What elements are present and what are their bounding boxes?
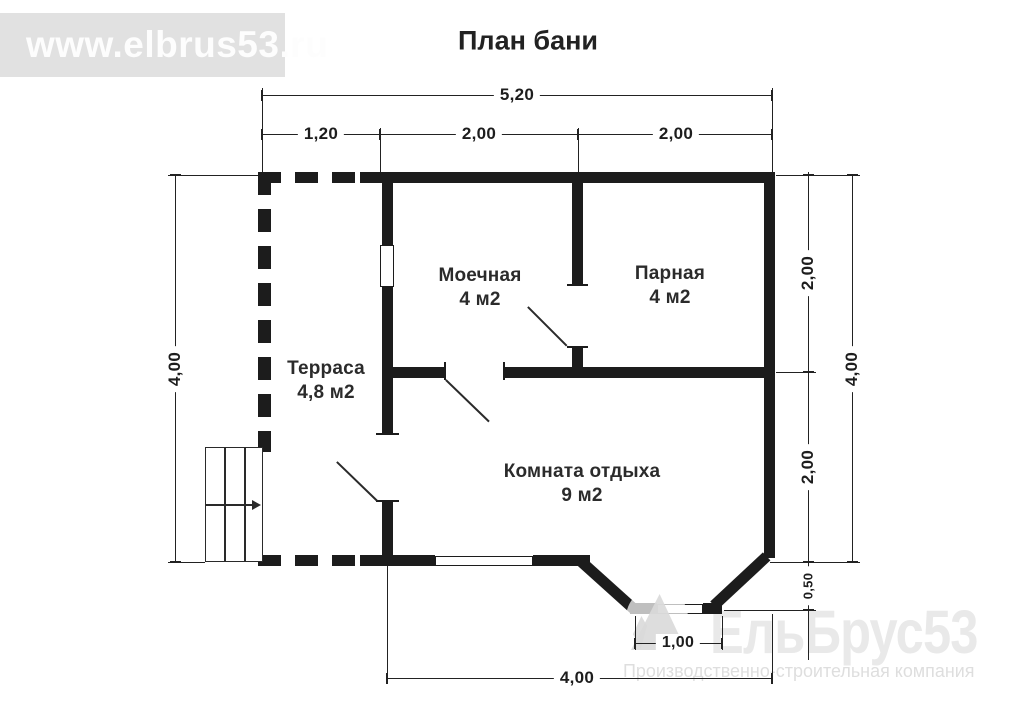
ext-line (776, 175, 860, 176)
wall-bay-bottom-right (703, 603, 722, 614)
room-area: 4 м2 (438, 288, 521, 312)
wall-top (360, 172, 775, 183)
dim-bay-width: 1,00 (656, 634, 700, 652)
ext-line (635, 616, 636, 650)
room-name: Терраса (287, 357, 365, 381)
floor-plan-canvas: ЕльБрус53 Производственно-строительная к… (0, 0, 1024, 717)
door-leaf-steam-room (527, 306, 567, 346)
wall-left-dashed-terrace (258, 172, 271, 452)
dim-left-total: 4,00 (162, 346, 188, 392)
wall-steam-divider-stub (572, 348, 583, 367)
stairs-direction-line (206, 504, 256, 506)
ext-line (772, 88, 773, 172)
door-leaf-terrace (336, 461, 377, 501)
room-label-rest-room: Комната отдыха 9 м2 (504, 460, 661, 508)
jamb-steam-door-top (567, 284, 588, 286)
door-leaf-rest-room (445, 379, 489, 422)
dim-bottom-total: 4,00 (554, 668, 600, 688)
jamb-rest-door-right (503, 362, 505, 380)
ext-line (262, 88, 263, 172)
room-area: 9 м2 (504, 484, 661, 508)
ext-line (770, 562, 860, 563)
window-terrace-wall (380, 245, 394, 287)
room-name: Моечная (438, 264, 521, 288)
room-label-terrace: Терраса 4,8 м2 (287, 357, 365, 405)
stairs (205, 447, 263, 562)
dim-top-total: 5,20 (494, 85, 540, 105)
dim-right-seg-1: 2,00 (795, 250, 821, 296)
ext-line (578, 128, 579, 172)
wall-bottom-dashed-terrace (258, 555, 362, 566)
wall-terrace-door-stub (382, 502, 393, 555)
wall-right (764, 172, 775, 558)
stairs-direction-arrow-icon (252, 500, 261, 510)
dim-right-seg-2: 2,00 (795, 444, 821, 490)
wall-bottom-left (360, 555, 435, 566)
wall-terrace-divider-lower (382, 287, 393, 433)
ext-line (168, 175, 258, 176)
dim-right-seg-3: 0,50 (798, 567, 819, 606)
jamb-terrace-door-bottom (376, 500, 399, 502)
wall-terrace-divider-upper (382, 183, 393, 245)
ext-line (168, 562, 205, 563)
ext-line (772, 614, 773, 684)
ext-line (722, 616, 723, 650)
jamb-steam-door-bottom (567, 346, 588, 348)
jamb-rest-door-left (444, 362, 446, 380)
room-area: 4,8 м2 (287, 381, 365, 405)
ext-line (776, 372, 816, 373)
jamb-terrace-door-top (376, 433, 399, 435)
watermark-logo-text: ЕльБрус53 (710, 597, 978, 667)
dim-right-total: 4,00 (839, 346, 865, 392)
ext-line (387, 566, 388, 684)
wall-top-dashed-terrace (258, 172, 362, 183)
window-rest-room (435, 556, 533, 566)
page-title: План бани (458, 26, 598, 57)
dim-top-seg-1: 1,20 (298, 124, 344, 144)
ext-line (724, 610, 816, 611)
room-label-steam-room: Парная 4 м2 (635, 262, 705, 310)
room-area: 4 м2 (635, 286, 705, 310)
site-banner: www.elbrus53.ru (0, 13, 285, 77)
ext-line (380, 128, 381, 172)
dim-top-seg-3: 2,00 (653, 124, 699, 144)
wall-steam-divider-upper (572, 183, 583, 285)
site-url: www.elbrus53.ru (0, 24, 328, 66)
dim-top-seg-2: 2,00 (456, 124, 502, 144)
room-label-washroom: Моечная 4 м2 (438, 264, 521, 312)
room-name: Парная (635, 262, 705, 286)
wall-washroom-bottom-right (504, 367, 775, 378)
room-name: Комната отдыха (504, 460, 661, 484)
